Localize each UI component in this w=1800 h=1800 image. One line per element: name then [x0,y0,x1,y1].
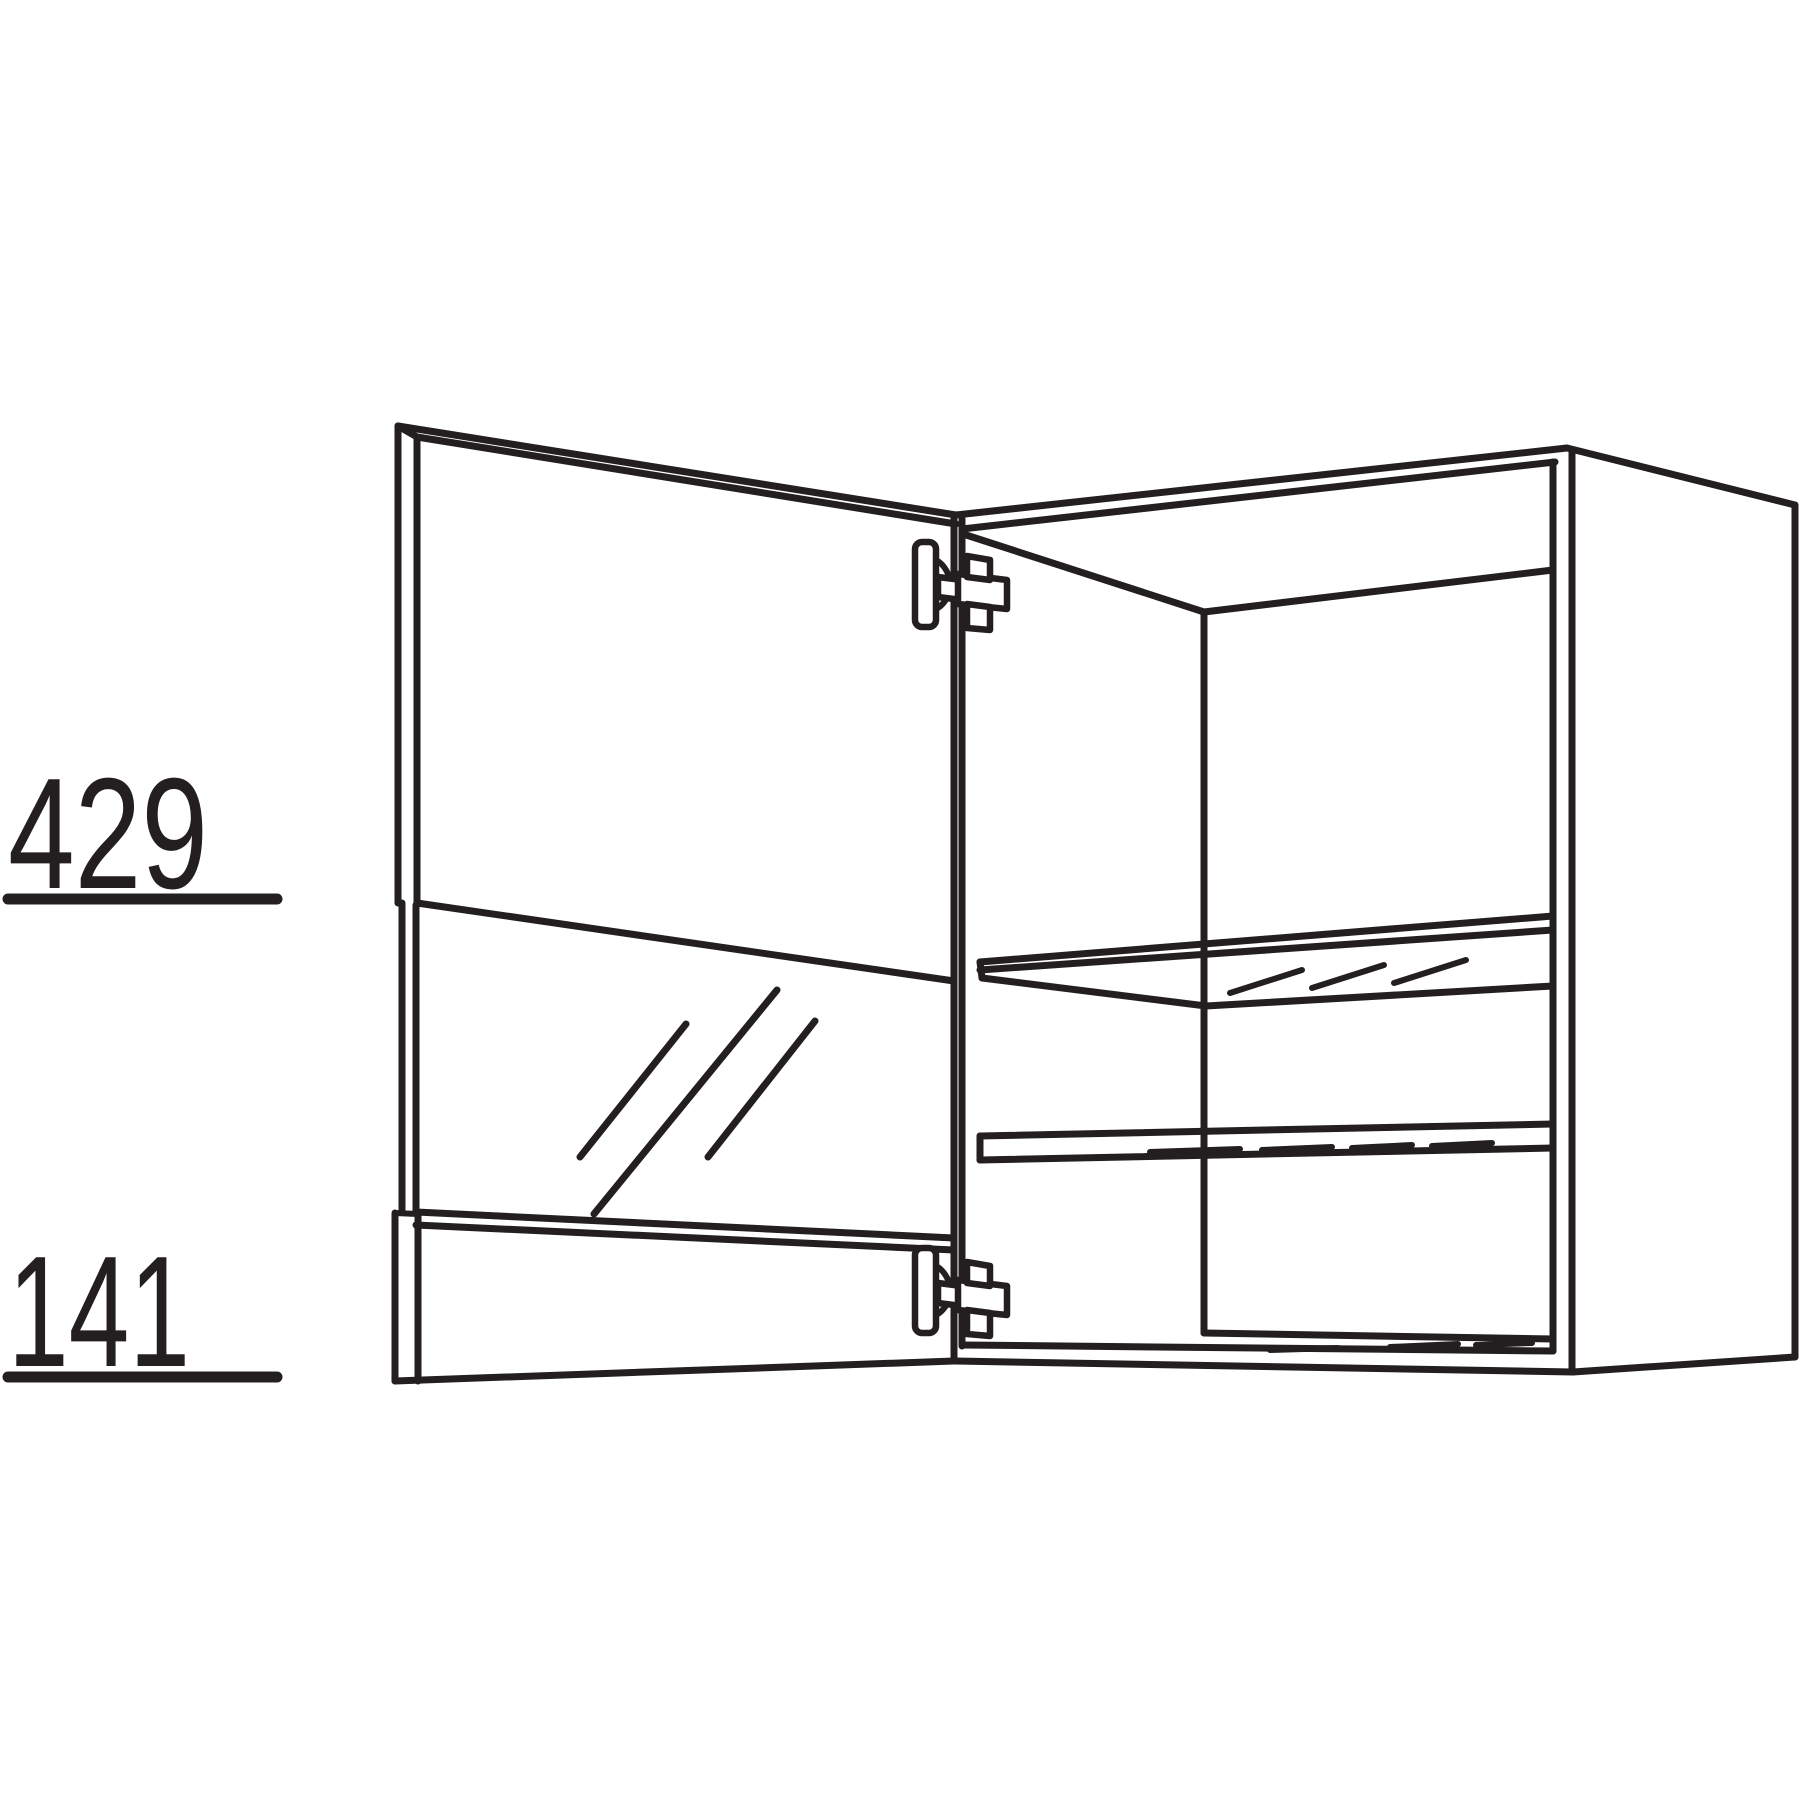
bottom-panel-top-front-edge [963,1345,1553,1351]
lower-glass-shelf [980,1124,1553,1160]
dimension-lower: 141 [8,1224,277,1400]
door-glass-top-divide [417,903,954,981]
door-rail-top-cap [395,1213,418,1214]
upper-shelf-front-edge-left [982,978,1206,1006]
cabinet-carcass [955,448,1795,1372]
upper-shelf-left-tip [980,962,982,978]
glass-reflection-line-3 [708,1021,815,1157]
upper-glass-shelf [980,916,1553,1006]
carcass-right-side-bottom-edge [1573,1357,1795,1372]
door-top-edge-outer [398,426,956,515]
bottom-panel-back-edge [1204,1333,1553,1339]
dimension-upper: 429 [8,746,277,922]
door-top-edge-inner [417,437,956,524]
top-hinge-mount-tab-upper [967,556,990,580]
top-hinge-mount-tab-lower [967,604,990,630]
bottom-hinge-mount-tab-lower [967,1310,990,1336]
upper-shelf-glass-hatching [1230,960,1466,993]
carcass-right-side-top-edge [1567,448,1795,505]
cabinet-diagram-page: 429 141 [0,0,1800,1800]
glass-reflection-lines [580,990,815,1214]
door-bottom-edge [395,1361,954,1381]
open-glass-door [395,426,956,1381]
cabinet-technical-drawing: 429 141 [0,0,1800,1800]
top-hinge-door-plate [915,542,936,627]
lower-shelf-top-edge [980,1124,1553,1136]
carcass-top-front-outer-edge [956,448,1567,515]
glass-reflection-line-1 [580,1024,686,1157]
upper-shelf-front-edge-right [1206,986,1553,1006]
interior-back-top-edge [1204,570,1553,612]
bottom-hinge-mount-tab-upper [967,1262,990,1286]
bottom-hinge-door-plate [915,1248,936,1333]
carcass-bottom-front-edge [955,1361,1573,1372]
carcass-top-front-inner-edge [962,462,1555,529]
